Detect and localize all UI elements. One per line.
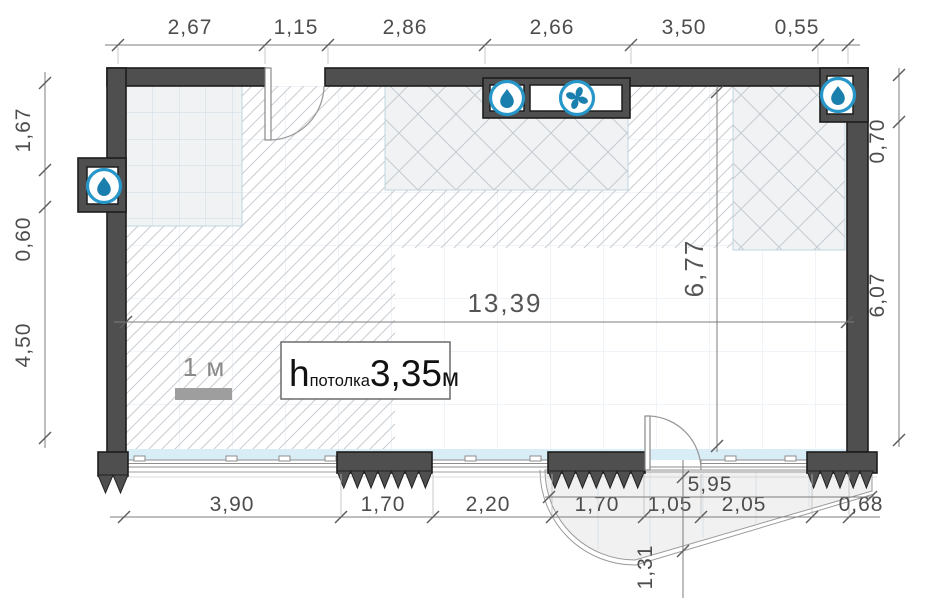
dim-top-5: 3,50 — [662, 16, 707, 39]
right-wall-pier — [807, 452, 877, 473]
dim-top-4: 2,66 — [530, 16, 575, 39]
ceiling-subscript: потолка — [310, 372, 371, 390]
dim-chain-left: 1,67 0,60 4,50 — [12, 72, 51, 448]
bottom-pier-1 — [337, 452, 432, 473]
left-wall-foot — [98, 452, 128, 476]
wall-break-zigzag — [337, 471, 432, 488]
window-handle — [785, 456, 796, 461]
right-wall — [847, 68, 868, 452]
window-handle — [134, 456, 145, 461]
water-drop-icon — [88, 170, 121, 203]
dim-right-1: 0,70 — [866, 119, 889, 164]
dim-label-interior-width: 13,39 — [467, 288, 542, 318]
dim-bottom-4: 1,70 — [575, 493, 620, 516]
dim-bottom-6: 2,05 — [722, 493, 767, 516]
floor-plan: 13,39 6,77 hпотолка3,35м 1 м 2,67 1, — [0, 0, 926, 606]
dim-top-2: 1,15 — [274, 16, 319, 39]
dim-top-6: 0,55 — [775, 16, 820, 39]
dim-top-3: 2,86 — [383, 16, 428, 39]
scale-bar-rect — [175, 388, 232, 400]
window-handle — [530, 456, 541, 461]
scale-label: 1 м — [183, 352, 226, 382]
wall-break-zigzag — [98, 475, 128, 493]
ceiling-symbol: h — [289, 353, 310, 394]
ceiling-unit: м — [442, 364, 459, 392]
window-handle — [465, 456, 476, 461]
dim-left-3: 4,50 — [12, 323, 35, 368]
dim-left-1: 1,67 — [12, 108, 35, 153]
dim-top-1: 2,67 — [168, 16, 213, 39]
floor-plan-drawing: 13,39 6,77 hпотолка3,35м 1 м 2,67 1, — [0, 0, 926, 606]
window-handle — [226, 456, 237, 461]
dim-bottom-7: 0,68 — [839, 493, 884, 516]
scale-bar: 1 м — [175, 352, 232, 400]
fan-icon — [561, 82, 594, 115]
ceiling-height-label: hпотолка3,35м — [281, 342, 459, 399]
dim-right-2: 6,07 — [866, 273, 889, 318]
window-handle — [725, 456, 736, 461]
left-wall — [107, 68, 126, 455]
dim-bottom-5: 1,05 — [648, 493, 693, 516]
dim-label-interior-height: 6,77 — [679, 239, 709, 298]
window-handle — [279, 456, 290, 461]
dim-bottom-3: 2,20 — [466, 493, 511, 516]
dim-label-balcony-width: 5,95 — [688, 473, 733, 496]
top-wall-left — [107, 68, 265, 86]
dim-chain-top: 2,67 1,15 2,86 2,66 3,50 0,55 — [105, 16, 860, 64]
dim-chain-right: 0,70 6,07 — [866, 68, 905, 447]
tiled-zone — [126, 86, 242, 226]
dim-bottom-2: 1,70 — [361, 493, 406, 516]
bottom-pier-2 — [548, 452, 645, 473]
water-drop-icon — [491, 82, 524, 115]
ceiling-value: 3,35 — [370, 353, 442, 394]
dim-bottom-1: 3,90 — [210, 493, 255, 516]
window-handle — [325, 456, 336, 461]
dim-left-2: 0,60 — [12, 217, 35, 262]
water-drop-icon — [822, 79, 855, 112]
dim-label-balcony-depth: 1,31 — [634, 545, 657, 590]
